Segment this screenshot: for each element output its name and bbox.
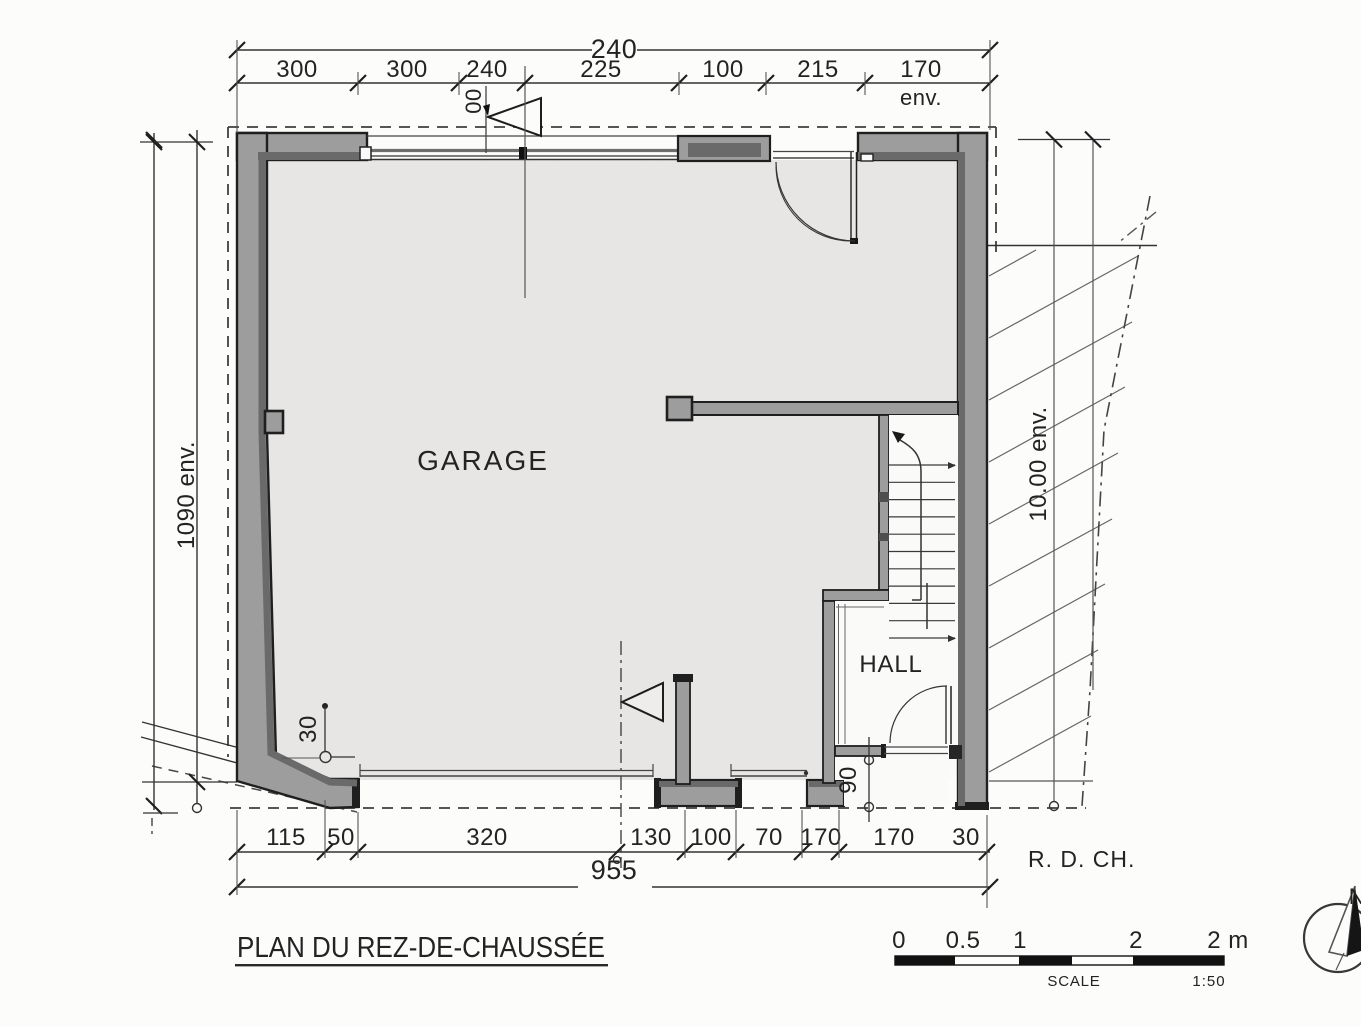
svg-text:1: 1 xyxy=(1013,927,1027,954)
svg-text:225: 225 xyxy=(580,56,622,83)
svg-text:90: 90 xyxy=(835,766,862,794)
svg-text:10.00 env.: 10.00 env. xyxy=(1025,406,1052,521)
svg-text:env.: env. xyxy=(900,85,942,110)
svg-text:70: 70 xyxy=(755,824,783,851)
svg-text:1090 env.: 1090 env. xyxy=(173,441,200,549)
svg-text:R. D. CH.: R. D. CH. xyxy=(1028,846,1135,872)
svg-text:170: 170 xyxy=(873,824,915,851)
svg-text:170: 170 xyxy=(900,56,942,83)
svg-text:GARAGE: GARAGE xyxy=(417,445,549,476)
svg-text:30: 30 xyxy=(295,715,322,743)
svg-text:100: 100 xyxy=(690,824,732,851)
svg-text:0: 0 xyxy=(892,927,906,954)
svg-text:30: 30 xyxy=(952,824,980,851)
svg-text:170: 170 xyxy=(800,824,842,851)
svg-text:N: N xyxy=(1349,884,1361,909)
svg-text:PLAN DU REZ-DE-CHAUSSÉE: PLAN DU REZ-DE-CHAUSSÉE xyxy=(237,931,605,964)
svg-text:215: 215 xyxy=(797,56,839,83)
svg-text:100: 100 xyxy=(702,56,744,83)
svg-text:SCALE: SCALE xyxy=(1047,973,1100,990)
svg-text:0.5: 0.5 xyxy=(946,927,981,954)
svg-text:2 m: 2 m xyxy=(1207,927,1249,954)
svg-text:115: 115 xyxy=(266,824,306,851)
svg-text:320: 320 xyxy=(466,824,508,851)
svg-text:955: 955 xyxy=(591,855,638,885)
svg-text:HALL: HALL xyxy=(859,651,922,678)
svg-text:00: 00 xyxy=(461,88,486,113)
svg-text:300: 300 xyxy=(276,56,318,83)
svg-text:240: 240 xyxy=(466,56,508,83)
svg-text:1:50: 1:50 xyxy=(1192,973,1225,990)
svg-text:50: 50 xyxy=(327,824,355,851)
svg-text:130: 130 xyxy=(630,824,672,851)
svg-text:2: 2 xyxy=(1129,927,1143,954)
svg-text:300: 300 xyxy=(386,56,428,83)
